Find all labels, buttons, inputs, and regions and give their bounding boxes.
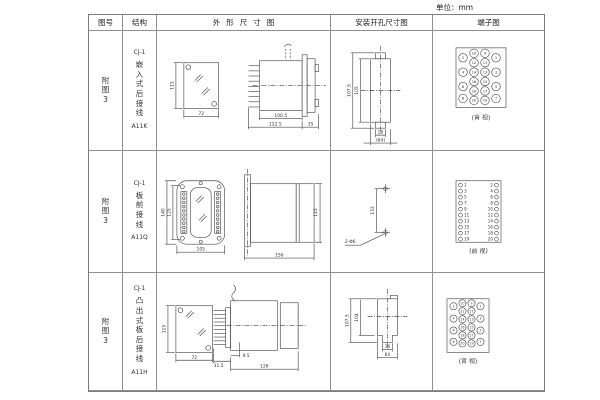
svg-text:20: 20 — [488, 237, 494, 242]
structure-char: 后 — [136, 90, 144, 99]
structure-char: 线 — [136, 355, 144, 364]
terminal-cell-row1: 2468101214161820911131517191357 (背 视) — [433, 31, 544, 151]
dim-total-len: 122.5 — [269, 122, 282, 128]
install-cell-row3: 107.5 104 16 64 — [331, 273, 433, 391]
dim-offset: 9.5 — [243, 353, 250, 359]
svg-text:12: 12 — [488, 213, 494, 218]
dim-outer-h: 107.5 — [346, 84, 352, 97]
dim-width: 105 — [196, 247, 205, 253]
svg-text:17: 17 — [483, 89, 488, 93]
terminal-circles: 2468101214161820911131517191357 — [450, 300, 484, 347]
dim-panel-w: (64) — [376, 138, 385, 144]
install-drawing-row3: 107.5 104 16 64 — [331, 273, 432, 390]
fig-no-char: 3 — [103, 96, 108, 105]
dim-width: 72 — [191, 355, 197, 361]
terminal-cell-row2: 1234567891011121314151617181920 (前 视) — [433, 151, 544, 273]
side-view: 100.5 122.5 35 — [248, 44, 326, 129]
dim-outer-h: 140 — [160, 208, 166, 217]
svg-text:5: 5 — [495, 85, 497, 89]
fig-no-row2: 附 图 3 — [89, 151, 123, 273]
structure-char: 接 — [136, 345, 144, 354]
model-code: CJ-1 — [134, 50, 146, 57]
outline-cell-row3: 115 72 9.5 31.5 126 — [157, 273, 331, 391]
outline-drawing-row2: 140 125 105 115 156 — [157, 151, 330, 272]
unit-label: 单位：mm — [436, 2, 473, 13]
svg-text:13: 13 — [469, 317, 473, 321]
fig-no-char: 附 — [102, 77, 110, 86]
svg-text:17: 17 — [464, 231, 470, 236]
header-fig-no: 图号 — [89, 15, 123, 31]
install-cell-row2: 133 2-Φ6 — [331, 151, 433, 273]
svg-text:15: 15 — [464, 225, 470, 230]
dim-width: 72 — [198, 111, 204, 117]
install-drawing-row1: 107.5 105 16 (64) — [331, 31, 432, 150]
svg-text:14: 14 — [472, 70, 477, 74]
outline-cell-row2: 140 125 105 115 156 — [157, 151, 331, 273]
header-install: 安装开孔尺寸图 — [331, 15, 433, 31]
terminal-drawing-row1: 2468101214161820911131517191357 (背 视) — [433, 31, 544, 150]
svg-text:16: 16 — [472, 80, 477, 84]
svg-text:18: 18 — [472, 89, 477, 93]
svg-text:7: 7 — [495, 97, 497, 101]
svg-text:1: 1 — [464, 183, 467, 188]
svg-text:15: 15 — [469, 325, 473, 329]
front-view: 115 72 — [161, 306, 212, 363]
svg-text:4: 4 — [462, 70, 465, 74]
svg-text:9: 9 — [484, 52, 487, 56]
svg-text:2: 2 — [490, 183, 493, 188]
dim-body-len: 100.5 — [274, 113, 287, 119]
svg-text:10: 10 — [460, 301, 464, 305]
fig-no-char: 图 — [102, 86, 110, 95]
structure-char: 凸 — [136, 297, 144, 306]
dim-outer-h: 107.5 — [344, 314, 350, 327]
fig-no-char: 附 — [102, 318, 110, 327]
variant-code: A11K — [132, 124, 148, 131]
svg-text:2: 2 — [462, 56, 464, 60]
spec-sheet-page: 单位：mm 图号 结构 外形尺寸图 安装开孔尺寸图 端子图 附 图 3 CJ-1… — [0, 0, 600, 400]
outline-drawing-row1: 115 72 100.5 122.5 — [157, 31, 330, 150]
structure-char: 板 — [136, 326, 144, 335]
svg-text:19: 19 — [469, 342, 473, 346]
view-label: (背 视) — [459, 357, 478, 365]
view-label: (背 视) — [472, 113, 491, 121]
structure-char: 线 — [136, 109, 144, 118]
svg-text:3: 3 — [495, 70, 497, 74]
svg-text:18: 18 — [460, 334, 464, 338]
header-outline: 外形尺寸图 — [157, 15, 331, 31]
svg-text:8: 8 — [490, 201, 493, 206]
svg-text:18: 18 — [488, 231, 494, 236]
svg-text:5: 5 — [464, 195, 467, 200]
structure-row3: CJ-1 凸 出 式 板 后 接 线 A11H — [123, 273, 157, 391]
fig-no-row3: 附 图 3 — [89, 273, 123, 391]
svg-text:10: 10 — [472, 52, 477, 56]
model-code: CJ-1 — [134, 286, 146, 293]
front-view: 115 72 — [169, 63, 218, 119]
svg-text:17: 17 — [469, 334, 473, 338]
structure-char: 前 — [136, 201, 144, 210]
dim-pin-len: 31.5 — [214, 363, 224, 369]
svg-text:3: 3 — [479, 317, 481, 321]
fig-no-char: 附 — [102, 198, 110, 207]
structure-char: 出 — [136, 307, 144, 316]
fig-no-row1: 附 图 3 — [89, 31, 123, 151]
svg-text:12: 12 — [460, 309, 464, 313]
terminal-circles: 1234567891011121314151617181920 — [459, 183, 499, 242]
dim-flange: 35 — [308, 122, 314, 128]
svg-text:10: 10 — [488, 207, 494, 212]
terminal-cell-row3: 2468101214161820911131517191357 (背 视) — [433, 273, 544, 391]
terminal-drawing-row2: 1234567891011121314151617181920 (前 视) — [433, 151, 544, 272]
svg-text:19: 19 — [483, 99, 488, 103]
svg-text:20: 20 — [472, 99, 477, 103]
svg-text:8: 8 — [462, 97, 465, 101]
svg-text:12: 12 — [472, 61, 477, 65]
structure-char: 嵌 — [136, 61, 144, 70]
svg-text:3: 3 — [464, 189, 467, 194]
model-code: CJ-1 — [134, 181, 146, 188]
dim-side-h: 115 — [313, 208, 319, 217]
header-terminal: 端子图 — [433, 15, 544, 31]
structure-char: 接 — [136, 211, 144, 220]
svg-text:1: 1 — [495, 56, 497, 60]
svg-text:4: 4 — [490, 189, 493, 194]
dim-notch-w: 16 — [378, 130, 384, 136]
fig-no-char: 3 — [103, 337, 108, 346]
svg-text:11: 11 — [469, 309, 473, 313]
hole-callout: 2-Φ6 — [345, 239, 356, 245]
spec-table: 图号 结构 外形尺寸图 安装开孔尺寸图 端子图 附 图 3 CJ-1 嵌 入 式… — [88, 14, 545, 392]
svg-text:6: 6 — [462, 85, 465, 89]
structure-row2: CJ-1 板 前 接 线 A11Q — [123, 151, 157, 273]
install-drawing-row2: 133 2-Φ6 — [331, 151, 432, 272]
svg-text:7: 7 — [479, 340, 481, 344]
svg-text:11: 11 — [464, 213, 470, 218]
structure-char: 接 — [136, 100, 144, 109]
variant-code: A11H — [131, 370, 147, 377]
variant-code: A11Q — [131, 235, 147, 242]
svg-text:11: 11 — [483, 61, 488, 65]
dim-notch-w: 16 — [385, 344, 391, 350]
fig-no-char: 3 — [103, 217, 108, 226]
svg-text:6: 6 — [452, 329, 454, 333]
dim-panel-w: 64 — [385, 352, 391, 358]
svg-text:8: 8 — [452, 340, 454, 344]
svg-text:13: 13 — [483, 70, 488, 74]
svg-text:16: 16 — [488, 225, 494, 230]
svg-text:9: 9 — [464, 207, 467, 212]
dim-hole-spacing: 133 — [370, 206, 376, 215]
outline-cell-row1: 115 72 100.5 122.5 — [157, 31, 331, 151]
view-label: (前 视) — [469, 247, 488, 255]
dim-height: 115 — [161, 325, 167, 334]
dim-body-len: 126 — [260, 364, 269, 370]
structure-row1: CJ-1 嵌 入 式 后 接 线 A11K — [123, 31, 157, 151]
front-view: 140 125 105 — [160, 181, 224, 254]
outline-drawing-row3: 115 72 9.5 31.5 126 — [157, 273, 330, 390]
terminal-drawing-row3: 2468101214161820911131517191357 (背 视) — [433, 273, 544, 390]
svg-text:14: 14 — [488, 219, 494, 224]
svg-text:15: 15 — [483, 80, 488, 84]
svg-text:14: 14 — [460, 317, 464, 321]
structure-char: 线 — [136, 221, 144, 230]
dim-height: 115 — [169, 81, 175, 90]
install-cell-row1: 107.5 105 16 (64) — [331, 31, 433, 151]
svg-text:6: 6 — [490, 195, 493, 200]
dim-inner-h: 125 — [166, 208, 172, 217]
svg-text:5: 5 — [479, 329, 481, 333]
svg-text:7: 7 — [464, 201, 467, 206]
dim-depth: 156 — [275, 253, 284, 259]
dim-inner-h: 105 — [354, 86, 360, 95]
fig-no-char: 图 — [102, 327, 110, 336]
svg-text:16: 16 — [460, 325, 464, 329]
svg-text:20: 20 — [460, 342, 464, 346]
fig-no-char: 图 — [102, 207, 110, 216]
svg-text:2: 2 — [452, 304, 454, 308]
structure-char: 式 — [136, 80, 144, 89]
structure-char: 式 — [136, 317, 144, 326]
side-view: 115 156 — [244, 169, 322, 260]
header-structure: 结构 — [123, 15, 157, 31]
svg-text:1: 1 — [479, 304, 481, 308]
terminal-circles: 2468101214161820911131517191357 — [459, 49, 501, 105]
dim-inner-h: 104 — [354, 313, 360, 322]
svg-text:4: 4 — [452, 317, 454, 321]
svg-text:9: 9 — [470, 301, 472, 305]
svg-text:13: 13 — [464, 219, 470, 224]
side-view: 9.5 31.5 126 — [214, 285, 306, 371]
svg-text:19: 19 — [464, 237, 470, 242]
